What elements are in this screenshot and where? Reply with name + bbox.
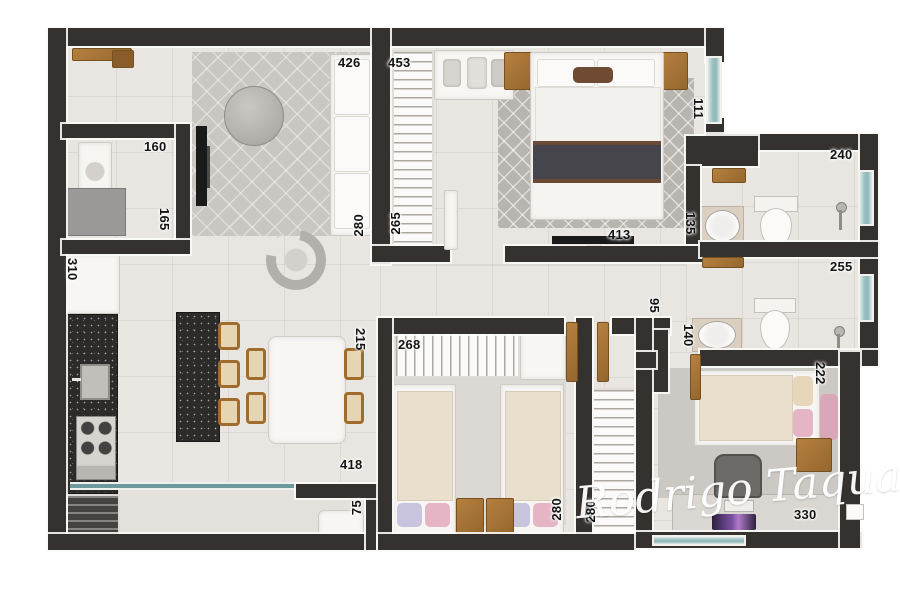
dim-master-window-side: 111 bbox=[692, 98, 705, 119]
washing-machine bbox=[78, 142, 112, 190]
dim-bedroom2-side: 280 bbox=[550, 498, 563, 521]
kitchen-sink bbox=[80, 364, 110, 400]
bath2-door-leaf bbox=[702, 257, 744, 268]
bedroom2-bed-left bbox=[392, 384, 456, 538]
dim-bedroom2-top: 268 bbox=[398, 338, 421, 351]
dim-living-top: 426 bbox=[338, 56, 361, 69]
floor-plan: 426 453 160 165 310 280 265 111 413 135 … bbox=[0, 0, 900, 591]
wall-ac-box bbox=[846, 504, 864, 520]
dim-bath2-side: 140 bbox=[682, 324, 695, 347]
accent-pillow bbox=[573, 67, 613, 83]
dining-table bbox=[268, 336, 346, 444]
wall-master-bottom-right bbox=[505, 246, 703, 262]
dim-master-wardrobe-side: 265 bbox=[389, 212, 402, 235]
dim-master-bottom: 413 bbox=[608, 228, 631, 241]
window-master bbox=[706, 56, 722, 124]
pillow-pink bbox=[425, 503, 450, 527]
bath1-shower-bar bbox=[839, 210, 842, 230]
bedroom2-cabinet bbox=[520, 330, 566, 380]
bath1-sink bbox=[705, 210, 740, 242]
hall-console bbox=[712, 168, 746, 183]
dim-living-side: 280 bbox=[352, 214, 365, 237]
dim-balcony-door: 418 bbox=[340, 458, 363, 471]
pillow-pink bbox=[793, 409, 813, 437]
nightstand-right bbox=[660, 52, 688, 90]
bath2-shower-bar bbox=[837, 334, 840, 350]
bed-foot bbox=[535, 183, 659, 215]
bedroom3-pink-chair bbox=[820, 394, 838, 440]
entry-door-hinge bbox=[112, 50, 134, 68]
dining-chair bbox=[344, 392, 364, 424]
dim-balcony-side: 75 bbox=[350, 500, 363, 515]
dim-hall-side: 95 bbox=[648, 298, 661, 313]
dining-chair bbox=[246, 392, 266, 424]
closet-door-leaf bbox=[597, 322, 609, 382]
bedroom2-door-leaf bbox=[566, 322, 578, 382]
blanket bbox=[505, 391, 561, 501]
dim-bath1-top: 240 bbox=[830, 148, 853, 161]
pillow-lavender bbox=[397, 503, 422, 527]
tv-shelf-living bbox=[207, 146, 210, 188]
wall-bedroom2-left bbox=[378, 318, 392, 550]
kitchen-island bbox=[176, 312, 220, 442]
wall-bath-divider bbox=[700, 242, 878, 257]
bedroom3-door-leaf bbox=[690, 354, 701, 400]
bedroom2-stool bbox=[486, 498, 514, 534]
window-bedroom3 bbox=[652, 535, 746, 546]
dim-bath1-side: 135 bbox=[684, 212, 697, 235]
coffee-table bbox=[224, 86, 284, 146]
island-stool bbox=[218, 398, 240, 426]
dim-bath2-top: 255 bbox=[830, 260, 853, 273]
nightstand-left bbox=[504, 52, 532, 90]
wall-balcony-return bbox=[296, 484, 384, 498]
folded-clothes bbox=[467, 57, 487, 89]
master-door-leaf bbox=[444, 190, 458, 250]
laundry-counter bbox=[66, 188, 126, 236]
dim-laundry-side: 165 bbox=[158, 208, 171, 231]
island-stool bbox=[218, 360, 240, 388]
pillow-beige bbox=[793, 376, 813, 406]
wall-laundry-right bbox=[176, 124, 190, 254]
dining-chair bbox=[344, 348, 364, 380]
dining-chair bbox=[246, 348, 266, 380]
window-bath2 bbox=[858, 274, 874, 322]
wall-bedroom2-bottom bbox=[378, 534, 636, 550]
wall-bedroom3-left-stub bbox=[636, 352, 656, 368]
master-bed bbox=[530, 52, 664, 220]
bedroom2-stool bbox=[456, 498, 484, 534]
wall-laundry-top bbox=[62, 124, 190, 138]
bedroom3-bed bbox=[694, 370, 820, 446]
wall-balcony-bottom bbox=[48, 534, 384, 550]
balcony-grill-unit bbox=[66, 494, 120, 538]
window-bath1 bbox=[858, 170, 874, 226]
bath2-sink bbox=[698, 321, 736, 349]
wall-bedroom2-top bbox=[378, 318, 564, 334]
dim-dining-side: 215 bbox=[354, 328, 367, 351]
blanket bbox=[397, 391, 453, 501]
island-stool bbox=[218, 322, 240, 350]
wall-left bbox=[48, 28, 66, 548]
wall-master-bottom-left bbox=[372, 246, 450, 262]
kitchen-faucet bbox=[72, 378, 81, 381]
wall-laundry-bottom bbox=[62, 240, 190, 254]
dim-laundry-top: 160 bbox=[144, 140, 167, 153]
balcony-sliding-door bbox=[70, 482, 298, 490]
folded-clothes bbox=[443, 59, 461, 87]
dim-bedroom3-side: 222 bbox=[814, 362, 827, 385]
tv-panel-living bbox=[196, 126, 207, 206]
wall-bath-shaft bbox=[686, 136, 758, 166]
bed-throw bbox=[533, 141, 661, 183]
stove bbox=[76, 416, 116, 480]
master-closet-shelf bbox=[434, 50, 514, 100]
blanket bbox=[699, 375, 793, 441]
dim-fridge-side: 310 bbox=[66, 258, 79, 281]
dim-master-wardrobe: 453 bbox=[388, 56, 411, 69]
duvet bbox=[535, 87, 661, 143]
sofa bbox=[330, 54, 378, 236]
